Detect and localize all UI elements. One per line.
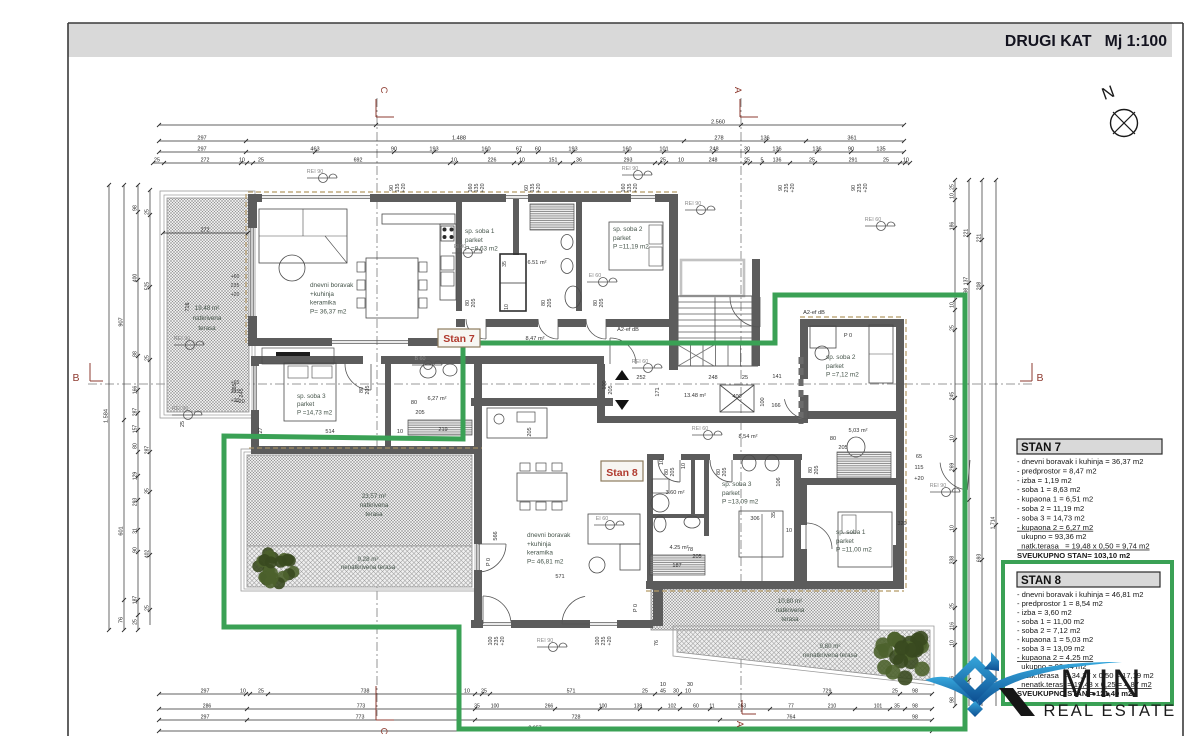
svg-text:729: 729 bbox=[823, 689, 832, 695]
svg-text:- kupaona 1 = 6,51 m2: - kupaona 1 = 6,51 m2 bbox=[1017, 495, 1093, 504]
svg-text:25: 25 bbox=[950, 603, 956, 609]
svg-text:EI 60: EI 60 bbox=[596, 516, 609, 522]
svg-text:keramika: keramika bbox=[527, 550, 553, 557]
svg-text:sp. soba 2: sp. soba 2 bbox=[826, 354, 856, 361]
svg-text:25: 25 bbox=[258, 689, 264, 695]
svg-text:EI 60: EI 60 bbox=[589, 273, 602, 279]
svg-text:287: 287 bbox=[133, 408, 139, 417]
svg-text:205: 205 bbox=[814, 466, 820, 475]
svg-text:10: 10 bbox=[903, 158, 909, 164]
svg-text:571: 571 bbox=[567, 689, 576, 695]
svg-text:76: 76 bbox=[119, 617, 125, 623]
svg-text:Stan 7: Stan 7 bbox=[443, 333, 475, 345]
svg-text:2.560: 2.560 bbox=[711, 120, 725, 126]
svg-text:25: 25 bbox=[180, 421, 186, 427]
svg-text:78: 78 bbox=[687, 547, 693, 553]
svg-text:278: 278 bbox=[714, 136, 723, 142]
svg-text:natkrivena: natkrivena bbox=[776, 607, 805, 614]
svg-text:248: 248 bbox=[708, 375, 717, 381]
svg-text:80: 80 bbox=[411, 400, 417, 406]
svg-text:293: 293 bbox=[133, 498, 139, 507]
svg-text:STAN 7: STAN 7 bbox=[1021, 442, 1061, 454]
svg-text:219: 219 bbox=[438, 427, 447, 433]
svg-text:P =7,12 m2: P =7,12 m2 bbox=[826, 372, 859, 379]
svg-text:35: 35 bbox=[894, 704, 900, 710]
svg-text:67: 67 bbox=[516, 147, 522, 153]
svg-text:10: 10 bbox=[950, 193, 956, 199]
svg-text:171: 171 bbox=[655, 387, 661, 396]
svg-text:25: 25 bbox=[133, 619, 139, 625]
svg-text:361: 361 bbox=[847, 136, 856, 142]
svg-text:+20: +20 bbox=[607, 636, 613, 645]
svg-text:287: 287 bbox=[145, 446, 151, 455]
svg-text:A2-ef dB: A2-ef dB bbox=[803, 310, 825, 316]
svg-text:76: 76 bbox=[654, 640, 660, 646]
svg-text:STAN 8: STAN 8 bbox=[1021, 575, 1062, 587]
svg-text:210: 210 bbox=[828, 704, 837, 710]
svg-text:205: 205 bbox=[599, 299, 605, 308]
svg-text:4.25 m²: 4.25 m² bbox=[670, 545, 689, 551]
svg-text:9,28 m²: 9,28 m² bbox=[358, 556, 379, 563]
svg-text:35: 35 bbox=[145, 488, 151, 494]
svg-text:- kupaona 2 = 6,27 m2: - kupaona 2 = 6,27 m2 bbox=[1017, 523, 1093, 532]
svg-text:25: 25 bbox=[145, 605, 151, 611]
svg-text:205: 205 bbox=[838, 445, 847, 451]
svg-text:60: 60 bbox=[693, 704, 699, 710]
svg-text:+60: +60 bbox=[231, 274, 240, 280]
svg-text:205: 205 bbox=[527, 427, 533, 436]
svg-text:25: 25 bbox=[642, 689, 648, 695]
svg-text:100: 100 bbox=[491, 704, 500, 710]
svg-text:248: 248 bbox=[709, 147, 718, 153]
svg-text:- soba 1 = 8,63 m2: - soba 1 = 8,63 m2 bbox=[1017, 485, 1081, 494]
svg-text:10: 10 bbox=[678, 158, 684, 164]
svg-text:601: 601 bbox=[119, 526, 125, 535]
svg-text:- kupaona 2 = 4,25 m2: - kupaona 2 = 4,25 m2 bbox=[1017, 653, 1093, 662]
svg-text:5: 5 bbox=[761, 158, 764, 164]
svg-text:25: 25 bbox=[883, 158, 889, 164]
svg-text:25: 25 bbox=[154, 158, 160, 164]
svg-text:dnevni boravak: dnevni boravak bbox=[527, 532, 571, 539]
svg-text:205: 205 bbox=[365, 386, 371, 395]
svg-text:272: 272 bbox=[201, 158, 210, 164]
svg-text:- soba 3 = 13,09 m2: - soba 3 = 13,09 m2 bbox=[1017, 644, 1085, 653]
svg-text:35: 35 bbox=[502, 261, 508, 267]
svg-text:90: 90 bbox=[391, 147, 397, 153]
svg-text:A: A bbox=[732, 87, 743, 94]
svg-text:402: 402 bbox=[145, 550, 151, 559]
svg-text:25: 25 bbox=[809, 158, 815, 164]
svg-text:115: 115 bbox=[915, 465, 924, 471]
svg-text:+20: +20 bbox=[500, 636, 506, 645]
svg-text:25: 25 bbox=[742, 375, 748, 381]
svg-text:293: 293 bbox=[624, 158, 633, 164]
svg-text:101: 101 bbox=[659, 147, 668, 153]
svg-text:10: 10 bbox=[659, 459, 665, 465]
svg-text:25: 25 bbox=[950, 325, 956, 331]
svg-text:31: 31 bbox=[133, 528, 139, 534]
svg-text:773: 773 bbox=[357, 704, 366, 710]
svg-text:297: 297 bbox=[201, 689, 210, 695]
svg-text:106: 106 bbox=[776, 477, 782, 486]
svg-text:160: 160 bbox=[481, 147, 490, 153]
svg-text:30: 30 bbox=[744, 147, 750, 153]
svg-text:25: 25 bbox=[145, 209, 151, 215]
svg-text:+20: +20 bbox=[401, 183, 407, 192]
svg-text:136: 136 bbox=[760, 136, 769, 142]
svg-text:252: 252 bbox=[636, 375, 645, 381]
svg-text:- soba 2 = 11,19 m2: - soba 2 = 11,19 m2 bbox=[1017, 504, 1084, 513]
svg-text:157: 157 bbox=[133, 425, 139, 434]
svg-text:291: 291 bbox=[849, 158, 858, 164]
svg-text:269: 269 bbox=[950, 463, 956, 472]
svg-text:566: 566 bbox=[493, 531, 499, 540]
svg-text:1.584: 1.584 bbox=[104, 409, 110, 423]
svg-text:338: 338 bbox=[950, 556, 956, 565]
svg-text:764: 764 bbox=[787, 715, 796, 721]
svg-text:205: 205 bbox=[608, 385, 614, 394]
svg-text:10: 10 bbox=[464, 689, 470, 695]
svg-text:10: 10 bbox=[239, 158, 245, 164]
svg-text:13.48 m²: 13.48 m² bbox=[684, 393, 706, 399]
svg-text:80: 80 bbox=[830, 436, 836, 442]
svg-text:nenatkrivena terasa: nenatkrivena terasa bbox=[803, 652, 858, 659]
svg-text:151: 151 bbox=[549, 158, 558, 164]
svg-text:10: 10 bbox=[950, 525, 956, 531]
svg-text:P= 46,81 m2: P= 46,81 m2 bbox=[527, 558, 564, 565]
svg-text:6.51 m²: 6.51 m² bbox=[528, 260, 547, 266]
svg-text:P =13,09 m2: P =13,09 m2 bbox=[722, 499, 759, 506]
svg-text:166: 166 bbox=[133, 386, 139, 395]
svg-text:10: 10 bbox=[519, 158, 525, 164]
svg-text:716: 716 bbox=[185, 303, 191, 312]
svg-text:+kuhinja: +kuhinja bbox=[310, 291, 334, 298]
svg-text:P =14,73 m2: P =14,73 m2 bbox=[297, 409, 333, 416]
svg-text:88: 88 bbox=[133, 351, 139, 357]
svg-text:parket: parket bbox=[836, 538, 854, 545]
svg-text:116: 116 bbox=[950, 622, 956, 630]
svg-text:- soba 1 = 11,00 m2: - soba 1 = 11,00 m2 bbox=[1017, 617, 1084, 626]
svg-text:65: 65 bbox=[916, 454, 922, 460]
svg-text:208: 208 bbox=[977, 282, 983, 291]
svg-text:98: 98 bbox=[133, 205, 139, 211]
svg-text:3.60 m²: 3.60 m² bbox=[666, 490, 685, 496]
svg-text:+20: +20 bbox=[914, 476, 924, 482]
svg-text:- izba = 3,60 m2: - izba = 3,60 m2 bbox=[1017, 608, 1072, 617]
svg-text:11: 11 bbox=[709, 704, 714, 710]
svg-text:Stan 8: Stan 8 bbox=[606, 467, 638, 479]
svg-text:320: 320 bbox=[897, 521, 906, 527]
svg-text:10: 10 bbox=[681, 463, 687, 469]
svg-text:C: C bbox=[378, 87, 389, 94]
svg-text:25: 25 bbox=[145, 355, 151, 361]
svg-text:136: 136 bbox=[812, 147, 821, 153]
svg-text:natkrivena: natkrivena bbox=[193, 315, 222, 322]
svg-text:193: 193 bbox=[568, 147, 577, 153]
svg-text:B 60: B 60 bbox=[414, 356, 425, 362]
svg-text:10: 10 bbox=[660, 682, 666, 688]
svg-text:8,54 m²: 8,54 m² bbox=[739, 434, 758, 440]
svg-text:6,27 m²: 6,27 m² bbox=[428, 396, 447, 402]
svg-text:terasa: terasa bbox=[781, 616, 799, 623]
svg-text:728: 728 bbox=[572, 715, 581, 721]
svg-text:205: 205 bbox=[722, 468, 728, 477]
svg-text:sp. soba 1: sp. soba 1 bbox=[465, 228, 495, 235]
svg-text:205: 205 bbox=[670, 468, 676, 477]
svg-text:297: 297 bbox=[197, 147, 206, 153]
svg-text:A: A bbox=[734, 721, 745, 728]
svg-text:100: 100 bbox=[599, 704, 608, 710]
svg-text:101: 101 bbox=[874, 704, 883, 710]
svg-text:137: 137 bbox=[964, 277, 970, 286]
svg-text:+20: +20 bbox=[231, 398, 240, 404]
svg-text:186: 186 bbox=[950, 222, 956, 231]
svg-text:25: 25 bbox=[481, 689, 487, 695]
svg-text:60: 60 bbox=[535, 147, 541, 153]
svg-text:terasa: terasa bbox=[365, 511, 383, 518]
svg-text:221: 221 bbox=[977, 234, 983, 243]
svg-text:77: 77 bbox=[788, 704, 794, 710]
svg-text:10: 10 bbox=[950, 640, 956, 646]
svg-text:98: 98 bbox=[912, 715, 918, 721]
svg-text:+65: +65 bbox=[231, 380, 240, 386]
svg-text:45: 45 bbox=[660, 689, 666, 695]
svg-text:205: 205 bbox=[471, 299, 477, 308]
svg-text:738: 738 bbox=[361, 689, 370, 695]
svg-text:272: 272 bbox=[201, 228, 210, 234]
svg-text:235: 235 bbox=[231, 283, 240, 289]
svg-text:98: 98 bbox=[912, 704, 918, 710]
svg-text:205: 205 bbox=[415, 410, 424, 416]
svg-text:SVEUKUPNO STAN= 103,10 m2: SVEUKUPNO STAN= 103,10 m2 bbox=[1017, 551, 1130, 560]
svg-text:+20: +20 bbox=[633, 183, 639, 192]
svg-text:natk.terasa = 19,48 x 0,50 =: natk.terasa = 19,48 x 0,50 = 9,74 m2 bbox=[1017, 542, 1150, 551]
svg-text:+20: +20 bbox=[536, 183, 542, 192]
svg-text:25: 25 bbox=[744, 158, 750, 164]
svg-text:parket: parket bbox=[826, 363, 844, 370]
svg-text:10: 10 bbox=[240, 689, 246, 695]
svg-text:nenatkrivena terasa: nenatkrivena terasa bbox=[341, 564, 396, 571]
svg-text:M: M bbox=[1060, 662, 1093, 706]
svg-text:205: 205 bbox=[547, 299, 553, 308]
svg-text:sp. soba 3: sp. soba 3 bbox=[722, 481, 752, 488]
svg-text:P =11,00 m2: P =11,00 m2 bbox=[836, 547, 872, 554]
svg-text:dnevni boravak: dnevni boravak bbox=[310, 282, 354, 289]
svg-text:1.714: 1.714 bbox=[991, 516, 997, 529]
svg-text:35: 35 bbox=[771, 512, 777, 518]
svg-text:10: 10 bbox=[451, 158, 457, 164]
svg-text:- kupaona 1 = 5,03 m2: - kupaona 1 = 5,03 m2 bbox=[1017, 635, 1093, 644]
svg-text:REAL ESTATE: REAL ESTATE bbox=[1043, 702, 1176, 720]
svg-text:193: 193 bbox=[429, 147, 438, 153]
svg-text:19,48 m²: 19,48 m² bbox=[195, 305, 219, 312]
svg-text:- soba 2 = 7,12 m2: - soba 2 = 7,12 m2 bbox=[1017, 626, 1081, 635]
svg-text:266: 266 bbox=[545, 704, 554, 710]
svg-text:10: 10 bbox=[504, 304, 510, 310]
svg-text:36: 36 bbox=[576, 158, 582, 164]
svg-text:98: 98 bbox=[950, 697, 956, 703]
svg-text:30: 30 bbox=[673, 689, 679, 695]
svg-text:9,80 m²: 9,80 m² bbox=[820, 643, 841, 650]
svg-text:10,80 m²: 10,80 m² bbox=[778, 598, 802, 605]
svg-text:286: 286 bbox=[203, 704, 212, 710]
svg-text:+20: +20 bbox=[480, 183, 486, 192]
svg-text:25: 25 bbox=[892, 689, 898, 695]
svg-text:571: 571 bbox=[555, 574, 564, 580]
svg-text:25: 25 bbox=[660, 158, 666, 164]
svg-text:160: 160 bbox=[622, 147, 631, 153]
svg-text:102: 102 bbox=[668, 704, 677, 710]
svg-text:10: 10 bbox=[786, 528, 792, 534]
svg-text:N: N bbox=[1112, 662, 1141, 706]
svg-text:773: 773 bbox=[356, 715, 365, 721]
svg-text:+20: +20 bbox=[790, 183, 796, 192]
svg-text:sp. soba 3: sp. soba 3 bbox=[297, 393, 326, 400]
svg-text:136: 136 bbox=[772, 147, 781, 153]
svg-text:C: C bbox=[378, 728, 389, 735]
svg-text:B: B bbox=[1036, 372, 1043, 384]
svg-text:221: 221 bbox=[964, 229, 970, 238]
svg-text:+20: +20 bbox=[863, 183, 869, 192]
svg-text:693: 693 bbox=[977, 554, 983, 563]
svg-text:400: 400 bbox=[133, 274, 139, 283]
svg-text:400: 400 bbox=[732, 394, 741, 400]
svg-text:907: 907 bbox=[119, 317, 125, 326]
svg-text:+kuhinja: +kuhinja bbox=[527, 541, 551, 548]
svg-text:keramika: keramika bbox=[310, 300, 336, 307]
svg-text:P= 36,37 m2: P= 36,37 m2 bbox=[310, 308, 347, 315]
svg-text:- dnevni boravak i kuhinja = 4: - dnevni boravak i kuhinja = 46,81 m2 bbox=[1017, 590, 1143, 599]
svg-text:B: B bbox=[72, 372, 79, 384]
svg-text:parket: parket bbox=[297, 401, 314, 408]
svg-text:297: 297 bbox=[197, 136, 206, 142]
svg-text:I: I bbox=[1098, 662, 1109, 706]
svg-text:297: 297 bbox=[201, 715, 210, 721]
svg-text:135: 135 bbox=[876, 147, 885, 153]
svg-text:245: 245 bbox=[950, 392, 956, 401]
svg-text:A2-ef dB: A2-ef dB bbox=[617, 327, 639, 333]
svg-text:- izba = 1,19 m2: - izba = 1,19 m2 bbox=[1017, 476, 1072, 485]
svg-text:98: 98 bbox=[912, 689, 918, 695]
svg-text:514: 514 bbox=[325, 429, 334, 435]
svg-text:90: 90 bbox=[848, 147, 854, 153]
svg-text:10: 10 bbox=[397, 429, 403, 435]
svg-text:25: 25 bbox=[258, 158, 264, 164]
svg-text:- predprostor = 8,47 m2: - predprostor = 8,47 m2 bbox=[1017, 466, 1097, 475]
svg-text:226: 226 bbox=[488, 158, 497, 164]
svg-text:245: 245 bbox=[239, 388, 245, 397]
svg-text:5,03 m²: 5,03 m² bbox=[849, 428, 868, 434]
svg-text:187: 187 bbox=[672, 563, 681, 569]
svg-text:P =11,19 m2: P =11,19 m2 bbox=[613, 244, 649, 251]
svg-text:- predprostor 1 = 8,54 m2: - predprostor 1 = 8,54 m2 bbox=[1017, 599, 1103, 608]
svg-text:ukupno = 93,36 m2: ukupno = 93,36 m2 bbox=[1017, 532, 1086, 541]
svg-text:25: 25 bbox=[950, 184, 956, 190]
svg-text:sp. soba 2: sp. soba 2 bbox=[613, 226, 643, 233]
svg-text:P 0: P 0 bbox=[844, 333, 852, 339]
svg-text:235: 235 bbox=[231, 389, 240, 395]
svg-text:187: 187 bbox=[133, 596, 139, 605]
svg-text:1.488: 1.488 bbox=[452, 136, 466, 142]
svg-text:23,57 m²: 23,57 m² bbox=[362, 493, 386, 500]
svg-text:35: 35 bbox=[474, 704, 480, 710]
svg-text:terasa: terasa bbox=[198, 325, 216, 332]
svg-text:100: 100 bbox=[760, 397, 766, 406]
svg-text:- soba 3 = 14,73 m2: - soba 3 = 14,73 m2 bbox=[1017, 513, 1085, 522]
svg-text:P 0: P 0 bbox=[486, 558, 492, 566]
svg-text:692: 692 bbox=[354, 158, 363, 164]
svg-text:139: 139 bbox=[634, 704, 643, 710]
svg-text:DRUGI KAT Mj 1:100: DRUGI KAT Mj 1:100 bbox=[1005, 33, 1167, 50]
svg-text:- dnevni boravak i kuhinja = 3: - dnevni boravak i kuhinja = 36,37 m2 bbox=[1017, 457, 1143, 466]
svg-text:10: 10 bbox=[685, 689, 691, 695]
svg-text:+20: +20 bbox=[231, 292, 240, 298]
svg-text:80: 80 bbox=[133, 443, 139, 449]
svg-text:463: 463 bbox=[310, 147, 319, 153]
svg-text:306: 306 bbox=[750, 516, 759, 522]
svg-text:parket: parket bbox=[465, 237, 483, 244]
svg-text:10: 10 bbox=[950, 435, 956, 441]
svg-text:525: 525 bbox=[145, 282, 151, 291]
svg-text:parket: parket bbox=[613, 235, 631, 242]
svg-text:P 0: P 0 bbox=[633, 604, 639, 612]
svg-text:136: 136 bbox=[773, 158, 782, 164]
svg-text:sp. soba 1: sp. soba 1 bbox=[836, 529, 866, 536]
svg-text:30: 30 bbox=[687, 682, 693, 688]
svg-text:166: 166 bbox=[771, 403, 780, 409]
svg-text:205: 205 bbox=[692, 554, 701, 560]
svg-text:10: 10 bbox=[950, 302, 956, 308]
svg-text:129: 129 bbox=[133, 472, 139, 481]
svg-text:141: 141 bbox=[772, 374, 781, 380]
svg-text:parket: parket bbox=[722, 490, 740, 497]
svg-text:90: 90 bbox=[133, 547, 139, 553]
svg-text:natkrivena: natkrivena bbox=[360, 502, 389, 509]
svg-text:248: 248 bbox=[709, 158, 718, 164]
svg-text:EI 90: EI 90 bbox=[454, 244, 467, 250]
